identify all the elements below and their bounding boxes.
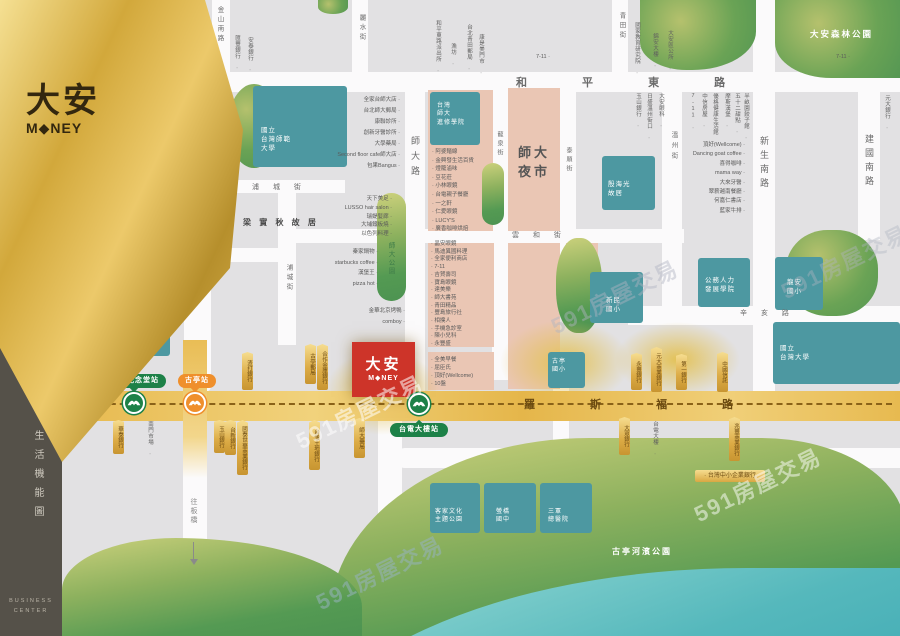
road-label-18: 大安森林公園 (810, 28, 873, 40)
station-pill-guting-station: 古亭站 (178, 374, 216, 388)
station-roundel-cks-memorial-hall-station (123, 392, 145, 414)
building-label-ntnu: 國立 台灣師範 大學 (261, 126, 291, 153)
road-label-2: 青田街 (616, 12, 626, 41)
direction-arrow-head (190, 559, 198, 565)
poi-label-13: 中信房屋 · (700, 93, 708, 130)
building-ntu: 國立 台灣大學 (773, 322, 900, 384)
building-yin-haiguang-residence: 殷海光 故居 (602, 156, 655, 210)
building-label-civil-service-institute: 公務人力 發展學院 (705, 276, 735, 294)
station-pill-taipower-building-station: 台電大樓站 (390, 423, 448, 437)
building-label-ntu: 國立 台灣大學 (780, 344, 810, 362)
poi-label-17: 半畝園餃子館 · (742, 93, 750, 142)
poi-label-20: 南門市場 · (146, 421, 154, 458)
poi-label-0: 和平東路派出所 · (434, 20, 442, 75)
road-label-12: 浦城街 (283, 264, 293, 293)
station-roundel-guting-station (184, 392, 206, 414)
building-label-tri-service-hospital: 三軍 總醫院 (548, 508, 569, 525)
road-label-6: 龍泉街 (495, 131, 504, 158)
bank-tag-2: 合作金庫銀行 (317, 344, 328, 390)
building-label-guting-elementary: 古亭 國小 (552, 358, 566, 375)
poi-label-1: 漁坊 · (449, 43, 457, 68)
bank-tag-10: 國泰世華商業銀行 (237, 420, 248, 475)
bank-tag-3: 永豐銀行 (631, 353, 642, 390)
poi-711-1: 7-11 · (836, 54, 850, 60)
road-label-15: 羅 斯 福 路 (524, 396, 759, 412)
poi-label-12: 7-11 · (690, 93, 696, 132)
building-label-yin-haiguang-residence: 殷海光 故居 (608, 180, 631, 198)
direction-to-banqiao: 往板橋 (188, 498, 198, 525)
green-top-small (318, 0, 348, 14)
building-label-ntnu-extension-college: 台灣 師大 進修學院 (437, 102, 465, 127)
poi-list-duck-shops: 金華北京烤鴨 · comboy · (369, 306, 405, 328)
bank-tag-13: 大眾銀行 (619, 417, 630, 455)
building-label-hakka-culture-park: 客家文化 主題公園 (435, 508, 463, 525)
brand-logo-name: 大安 (26, 84, 100, 118)
brand-logo: 大安 M◆NEY (26, 84, 100, 137)
bank-tag-1: 古亭郵局 (305, 344, 316, 384)
poi-list-landmark-east-shops: · 全美早餐 · 屈臣氏 · 頂好(Wellcome) · 10盤 (431, 356, 473, 388)
poi-label-10: 日盛溫州街口 · (645, 93, 653, 142)
poi-label-3: 康是美門市 · (477, 34, 485, 77)
poi-label-11: 大安眼科 · (657, 93, 665, 130)
poi-list-shida-park-shops: 秦家鍋物 · starbucks coffee · 漢堡王 · pizza ho… (335, 247, 378, 289)
direction-arrow-line (193, 542, 194, 560)
bank-tag-14: 兆豐商業銀行 (729, 417, 740, 461)
location-map-page: { "sidebar": { "brand_line1": "大安", "bra… (0, 0, 900, 636)
poi-label-9: 玉山銀行 · (634, 93, 642, 130)
sidebar-footer-line1: BUSINESS (0, 596, 62, 606)
poi-label-16: 五十二甜點 · (733, 93, 741, 136)
bank-tag-4: 元大商業銀行 (651, 347, 662, 392)
building-hakka-culture-park: 客家文化 主題公園 (430, 483, 480, 533)
road-xinsheng-s-rd (753, 0, 775, 392)
poi-label-5: 安泰銀行 · (246, 37, 254, 74)
building-ntnu-extension-college: 台灣 師大 進修學院 (430, 92, 480, 145)
poi-list-nightmarket-north-shops: · 阿婆麵線 · 金興發生活百貨 · 燈籠滷味 · 豆花莊 · 小林眼鏡 · 台… (432, 148, 474, 234)
road-label-14: 辛 亥 路 (740, 308, 795, 318)
poi-label-4: 匯豐銀行 · (233, 35, 241, 72)
poi-list-shida-rd-west-shops: 全家台師大店 · 台北師大郵局 · 康聯診所 · 創新牙醫診所 · 大學藥局 ·… (337, 95, 400, 172)
road-label-20: 梁 實 秋 故 居 (243, 217, 319, 228)
bank-tag-9: 台新銀行 (225, 420, 236, 455)
road-label-13: 雲 和 街 (512, 230, 567, 240)
bank-tag-0: 渣打銀行 (242, 352, 253, 390)
poi-label-14: 優格健康生活館 · (711, 93, 719, 148)
mrt-logo-icon (125, 394, 143, 412)
poi-label-15: 摩斯漢堡 · (723, 93, 731, 130)
longquan-green (482, 163, 504, 225)
poi-label-19: 台電大樓 · (651, 421, 659, 458)
poi-label-18: 元大銀行 · (883, 95, 891, 132)
road-label-10: 建國南路 (863, 134, 876, 190)
sidebar-footer-line2: CENTER (0, 606, 62, 616)
road-label-7: 泰順街 (564, 147, 573, 174)
sidebar-vertical-title: 生活機能圖 (30, 430, 45, 525)
building-ntnu: 國立 台灣師範 大學 (253, 86, 347, 167)
poi-label-6: 國家教育研究院 · (633, 22, 641, 77)
building-tri-service-hospital: 三軍 總醫院 (540, 483, 592, 533)
road-label-11: 浦 城 街 (252, 182, 307, 192)
building-civil-service-institute: 公務人力 發展學院 (698, 258, 750, 307)
road-label-5: 師大路 (409, 136, 422, 181)
bank-tag-8: 玉山銀行 (214, 420, 225, 453)
road-label-17: 師大公園 (385, 242, 395, 276)
road-pucheng-st-v (278, 180, 296, 345)
poi-label-7: 錦安大樓 · (651, 33, 659, 70)
road-label-9: 新生南路 (758, 136, 771, 192)
brand-logo-money: M◆NEY (26, 120, 100, 137)
poi-label-2: 台北青田郵局 · (465, 24, 473, 73)
building-label-yingqiao-junior-high: 螢橋 國中 (496, 508, 510, 525)
road-label-16: 師大 夜市 (518, 142, 550, 180)
poi-list-xinsheng-shops: 頂好(Wellcome) · Dancing goat coffee · 喜得咖… (693, 141, 745, 216)
bank-tag-6: 中國信託 (717, 352, 728, 392)
building-guting-elementary: 古亭 國小 (548, 352, 585, 388)
road-label-19: 古亭河濱公園 (612, 546, 672, 557)
building-yingqiao-junior-high: 螢橋 國中 (484, 483, 536, 533)
bank-tag-7: 華泰銀行 (113, 420, 124, 454)
poi-711-0: 7-11 · (536, 54, 550, 60)
bank-tag-5: 第一銀行 (676, 354, 687, 390)
poi-label-8: 大安區公所 · (666, 30, 674, 73)
road-label-8: 溫州街 (668, 131, 678, 163)
mrt-logo-icon (186, 394, 204, 412)
poi-list-pucheng-st-shops: 天下美足 · LUSSO hair salon · 瑞媞髮廊 · 大埔鐵板燒 ·… (345, 195, 392, 239)
road-label-1: 麗水街 (356, 14, 366, 43)
sidebar-footer: BUSINESS CENTER (0, 596, 62, 617)
poi-list-nightmarket-south-shops: · 晶安眼鏡 · 馬迪異國料理 · 全家便利商店 · 7-11 · 吉賀壽司 ·… (431, 241, 467, 349)
